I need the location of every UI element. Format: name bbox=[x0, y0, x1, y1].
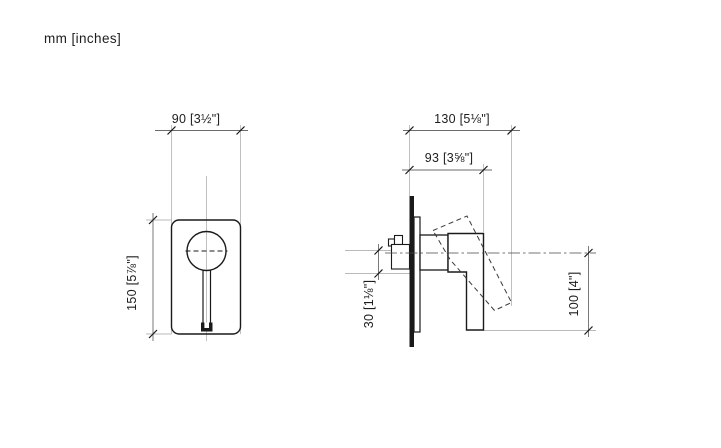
units-label: mm [inches] bbox=[44, 31, 121, 46]
wall-plate bbox=[410, 196, 415, 347]
dim-side-center-offset: 30 [1⅛"] bbox=[362, 280, 376, 329]
front-plate bbox=[172, 220, 241, 334]
handle-lever-side bbox=[448, 234, 484, 331]
technical-drawing-page: mm [inches] 90 [3½"] 150 [5⅞"] 130 [5⅛"]… bbox=[0, 0, 721, 448]
front-lever-tip-notch bbox=[204, 323, 209, 329]
front-dimension-ticks bbox=[149, 127, 245, 339]
drawing-linework bbox=[0, 0, 721, 448]
valve-stub bbox=[389, 236, 410, 270]
front-dimension-lines bbox=[153, 131, 248, 342]
dim-side-body-depth: 93 [3⅝"] bbox=[425, 151, 474, 165]
dim-front-height: 150 [5⅞"] bbox=[125, 255, 139, 311]
front-view bbox=[146, 125, 248, 341]
dim-front-width: 90 [3½"] bbox=[172, 112, 221, 126]
dim-side-max-depth: 130 [5⅛"] bbox=[434, 112, 490, 126]
escutcheon-plate bbox=[414, 217, 420, 332]
dim-side-lever-drop: 100 [4"] bbox=[567, 271, 581, 316]
front-extension-lines bbox=[146, 125, 241, 341]
handle-sleeve bbox=[420, 235, 448, 270]
